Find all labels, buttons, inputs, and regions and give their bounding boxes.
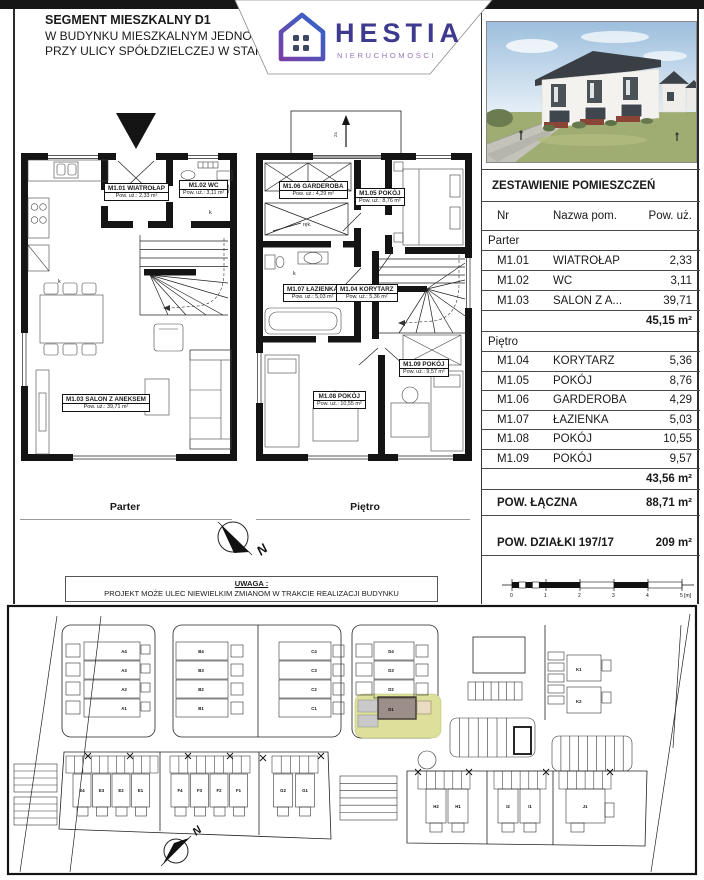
siteplan-unit-label: J1	[583, 804, 588, 809]
siteplan-unit-label: A1	[121, 706, 127, 711]
scale-tick-2: 2	[578, 593, 581, 599]
total-label: POW. ŁĄCZNA	[481, 497, 578, 509]
room-label-m108: M1.08 POKÓJ Pow. uż.: 10,55 m²	[313, 391, 366, 409]
plot-label: POW. DZIAŁKI 197/17	[481, 537, 614, 549]
siteplan-unit-label: D2	[388, 687, 394, 692]
siteplan-unit-label: C4	[311, 649, 317, 654]
table-row: M1.05 POKÓJ 8,76	[481, 372, 700, 392]
plot-value: 209 m²	[656, 537, 700, 549]
left-border	[13, 8, 15, 604]
north-compass: N	[205, 512, 290, 570]
siteplan-unit-label: B2	[198, 687, 204, 692]
logo-banner: HESTIA NIERUCHOMOŚCI	[195, 0, 495, 78]
table-row: M1.04 KORYTARZ 5,36	[481, 352, 700, 372]
scale-segments	[512, 582, 682, 588]
room-label-m102: M1.02 WC Pow. uż.: 3,11 m²	[179, 180, 228, 198]
siteplan-unit-label: I1	[528, 804, 532, 809]
siteplan-unit-label: F3	[197, 788, 203, 793]
table-title: ZESTAWIENIE POMIESZCZEŃ	[481, 170, 700, 202]
siteplan-unit-label: B1	[198, 706, 204, 711]
siteplan-unit-label: I2	[506, 804, 510, 809]
siteplan-unit-label: B3	[198, 668, 204, 673]
notice-text: PROJEKT MOŻE ULEC NIEWIELKIM ZMIANOM W T…	[66, 589, 437, 599]
siteplan-unit-label: K1	[576, 667, 582, 672]
room-label-m107: M1.07 ŁAZIENKA Pow. uż.: 5,03 m²	[283, 284, 342, 302]
scale-tick-1: 1	[544, 593, 547, 599]
floor-plan-pietro: 2x	[253, 103, 478, 523]
floor-plan-parter: k k	[18, 103, 243, 523]
table-row: M1.03 SALON Z A... 39,71	[481, 291, 700, 311]
floorplan-sheet: SEGMENT MIESZKALNY D1 W BUDYNKU MIESZKAL…	[0, 0, 704, 880]
siteplan-unit-label: C1	[311, 706, 317, 711]
table-spacer	[481, 516, 700, 530]
room-label-m104: M1.04 KORYTARZ Pow. uż.: 5,36 m²	[336, 284, 398, 302]
caption-parter: Parter	[95, 501, 155, 513]
siteplan-unit-label-highlight: D1	[388, 707, 394, 712]
parter-lines	[23, 156, 229, 460]
siteplan-unit-label: G1	[302, 788, 308, 793]
total-value: 88,71 m²	[646, 497, 700, 509]
siteplan-unit-label: A4	[121, 649, 127, 654]
logo-tagline: NIERUCHOMOŚCI	[337, 51, 436, 60]
siteplan-unit-label: K2	[576, 699, 582, 704]
siteplan-unit-label: H1	[455, 804, 461, 809]
siteplan-unit-label: E2	[118, 788, 124, 793]
scale-tick-4: 4	[646, 593, 649, 599]
scale-tick-5: 5 [m]	[680, 593, 692, 599]
siteplan-unit-label: B4	[198, 649, 204, 654]
subtotal-parter: 45,15 m²	[481, 311, 700, 332]
townhouses-illustration	[487, 22, 696, 162]
siteplan-unit-label: D4	[388, 649, 394, 654]
highlight-plot-d1	[355, 694, 441, 738]
siteplan-unit-label: C2	[311, 687, 317, 692]
siteplan-unit-label: E4	[79, 788, 85, 793]
annotation-k-wc: k	[209, 210, 212, 216]
notice-title: UWAGA :	[66, 579, 437, 589]
siteplan-unit-label: A2	[121, 687, 127, 692]
siteplan-unit-label: C3	[311, 668, 317, 673]
room-label-m101: M1.01 WIATROŁAP Pow. uż.: 2,33 m²	[104, 183, 169, 201]
siteplan-unit-label: G2	[280, 788, 286, 793]
col-name: Nazwa pom.	[553, 210, 649, 222]
table-row: M1.08 POKÓJ 10,55	[481, 430, 700, 450]
logo-wordmark: HESTIA	[335, 18, 464, 48]
subtotal-pietro: 43,56 m²	[481, 469, 700, 490]
highlight-building-d1	[378, 697, 416, 719]
siteplan-unit-label: D3	[388, 668, 394, 673]
caption-pietro: Piętro	[335, 501, 395, 513]
room-label-m109: M1.09 POKÓJ Pow. uż.: 9,57 m²	[399, 359, 449, 377]
col-area: Pow. uż.	[649, 210, 700, 222]
table-row: M1.06 GARDEROBA 4,29	[481, 391, 700, 411]
siteplan-unit-label: E3	[99, 788, 105, 793]
table-row: M1.07 ŁAZIENKA 5,03	[481, 411, 700, 431]
total-row: POW. ŁĄCZNA 88,71 m²	[481, 490, 700, 516]
entrance-arrow	[116, 113, 156, 149]
plot-row: POW. DZIAŁKI 197/17 209 m²	[481, 530, 700, 556]
room-label-m106: M1.06 GARDEROBA Pow. uż.: 4,29 m²	[279, 181, 348, 199]
siteplan-unit-label: F4	[177, 788, 183, 793]
siteplan-unit-label: F2	[216, 788, 222, 793]
table-row: M1.01 WIATROŁAP 2,33	[481, 251, 700, 271]
room-schedule-table: ZESTAWIENIE POMIESZCZEŃ Nr Nazwa pom. Po…	[481, 169, 700, 556]
siteplan-unit-label: F1	[236, 788, 242, 793]
siteplan-unit-label: E1	[138, 788, 144, 793]
caption-rule-parter	[20, 519, 232, 520]
table-header-row: Nr Nazwa pom. Pow. uż.	[481, 202, 700, 231]
section-parter: Parter	[481, 231, 700, 251]
table-row: M1.02 WC 3,11	[481, 271, 700, 291]
siteplan-unit-label: H2	[433, 804, 439, 809]
annotation-rek: ręk.	[303, 222, 311, 228]
scale-bar: 0 1 2 3 4 5 [m]	[500, 572, 696, 599]
table-row: M1.09 POKÓJ 9,57	[481, 450, 700, 470]
site-plan: A4 A3 A2 A1 B4 B3 B2 B1 C4 C3 C2 C1 D4 D…	[0, 600, 704, 880]
col-nr: Nr	[481, 210, 553, 222]
section-pietro: Piętro	[481, 332, 700, 352]
annotation-k-bath: k	[293, 271, 296, 277]
scale-tick-3: 3	[612, 593, 615, 599]
siteplan-unit-label: A3	[121, 668, 127, 673]
room-label-m105: M1.05 POKÓJ Pow. uż.: 8,76 m²	[355, 188, 405, 206]
annotation-k-kitchen: k	[58, 279, 61, 285]
compass-n-label: N	[254, 540, 271, 558]
building-render-photo	[486, 21, 697, 163]
notice-box: UWAGA : PROJEKT MOŻE ULEC NIEWIELKIM ZMI…	[65, 576, 438, 602]
room-label-m103: M1.03 SALON Z ANEKSEM Pow. uż.: 39,71 m²	[62, 394, 150, 412]
annotation-slope: 2x	[333, 131, 339, 137]
scale-tick-0: 0	[510, 593, 513, 599]
